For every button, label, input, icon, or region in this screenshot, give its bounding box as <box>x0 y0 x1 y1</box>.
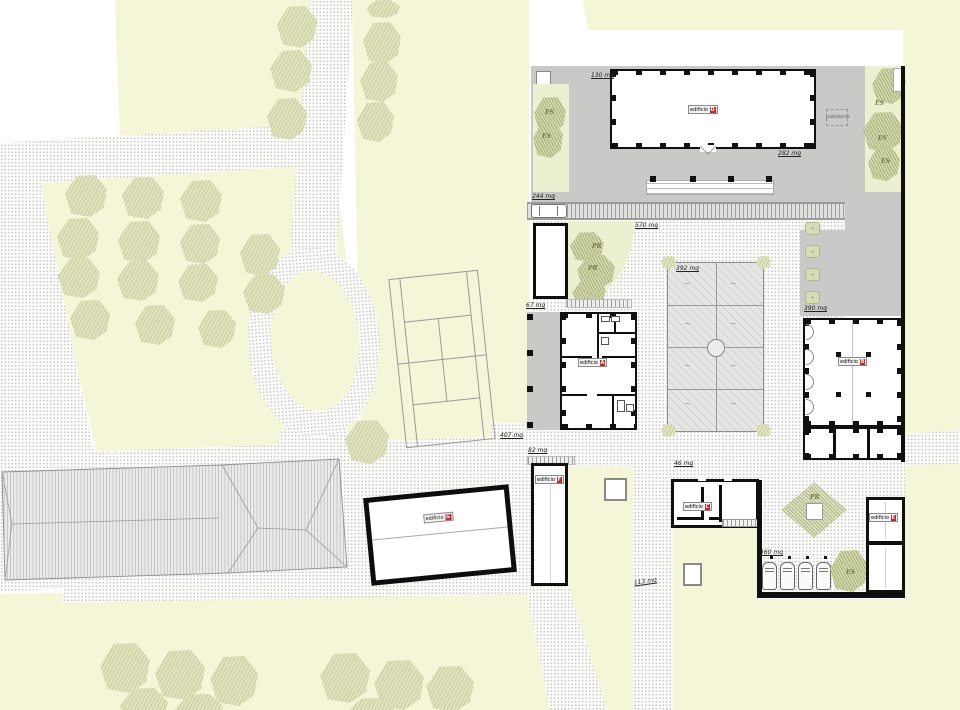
building-label-letter: C <box>705 504 711 510</box>
planter <box>805 222 820 235</box>
building-d-columns <box>624 92 804 95</box>
building-label-g: edificioG <box>423 512 453 524</box>
door-gap <box>698 477 706 481</box>
wall <box>677 517 704 520</box>
area-label-46: 46 mq <box>674 461 693 467</box>
pier <box>650 176 656 182</box>
building-label-text: edificio <box>425 514 443 522</box>
pier <box>527 422 533 428</box>
building-label-text: edificio <box>690 107 708 113</box>
pier <box>527 314 533 320</box>
parking-tick <box>824 556 827 559</box>
annex-divider <box>867 429 870 458</box>
building-label-a: edificioA <box>578 358 607 367</box>
planter <box>805 291 820 304</box>
area-label-390: 390 mq <box>804 306 827 312</box>
wall <box>709 517 721 520</box>
es-marker: ES <box>545 110 554 116</box>
fixture <box>611 316 620 322</box>
tennis-court <box>388 270 495 448</box>
planter <box>805 268 820 281</box>
walk-edge-hatch <box>566 299 632 308</box>
pergola-line <box>668 389 763 390</box>
wall <box>597 314 599 358</box>
building-label-e: edificioE <box>869 513 898 522</box>
pier <box>527 386 533 392</box>
area-label-570: 570 mq <box>635 223 658 229</box>
pr-marker: PR <box>810 495 820 501</box>
area-label-82: 82 mq <box>528 448 547 454</box>
es-marker: ES <box>875 101 884 107</box>
entrance-door-icon <box>698 146 718 156</box>
area-label-407: 407 mq <box>500 433 523 439</box>
bench-symbol: ~ <box>684 320 691 328</box>
building-label-b: edificioB <box>838 357 867 366</box>
arcade-west <box>527 312 562 430</box>
planter <box>805 245 820 258</box>
wall <box>612 396 614 428</box>
building-e <box>866 497 905 593</box>
building-label-letter: B <box>860 359 866 365</box>
fixture <box>617 400 625 412</box>
pr-marker: PR <box>588 266 598 272</box>
area-label-392: 392 mq <box>676 266 699 272</box>
garden-square <box>683 563 702 586</box>
building-f-centerline <box>550 478 551 583</box>
garden-square <box>604 478 627 501</box>
wall <box>599 332 635 334</box>
annex-divider <box>833 429 836 458</box>
door-gap <box>724 477 732 481</box>
parking-tick <box>770 556 773 559</box>
building-b <box>803 318 903 427</box>
bench-symbol: ~ <box>730 362 737 370</box>
building-e-divider <box>869 541 902 545</box>
building-label-text: edificio <box>580 360 598 366</box>
building-label-c: edificioC <box>683 502 712 511</box>
car <box>780 562 795 590</box>
building-g: edificioG <box>363 484 517 586</box>
building-d-columns <box>624 124 804 127</box>
fixture <box>626 404 634 412</box>
steps-hatch <box>722 519 761 527</box>
building-label-letter: D <box>710 107 716 113</box>
es-marker: ES <box>846 570 855 576</box>
building-label-text: edificio <box>871 515 889 521</box>
building-label-letter: A <box>600 360 606 366</box>
building-nw-annex <box>533 223 568 299</box>
building-label-d: edificioD <box>688 105 718 114</box>
car <box>798 562 813 590</box>
road-strip <box>527 202 845 220</box>
building-label-letter: G <box>445 514 452 521</box>
building-label-text: edificio <box>537 477 555 483</box>
bench-symbol: ~ <box>684 362 691 370</box>
fixture <box>601 316 610 322</box>
area-label-67: 67 mq <box>526 303 545 309</box>
pergola-line <box>668 305 763 306</box>
wall <box>562 394 587 396</box>
platform-label: piattaforma <box>826 115 850 119</box>
building-b-annex <box>803 427 903 460</box>
bench-symbol: ~ <box>730 400 737 408</box>
pier <box>728 176 734 182</box>
area-label-244: 244 mq <box>532 194 555 200</box>
wall <box>597 394 635 396</box>
building-label-letter: E <box>891 515 896 521</box>
bench-symbol: ~ <box>730 320 737 328</box>
pergola-hub <box>707 339 725 357</box>
pr-marker: PR <box>592 244 602 250</box>
pier <box>527 350 533 356</box>
bench-symbol: ~ <box>730 280 737 288</box>
pier <box>690 176 696 182</box>
es-marker: ES <box>881 159 890 165</box>
car <box>816 562 831 590</box>
bench-symbol: ~ <box>684 400 691 408</box>
building-label-text: edificio <box>685 504 703 510</box>
parking-tick <box>788 556 791 559</box>
area-label-282: 282 mq <box>778 151 801 157</box>
site-plan: ES ES edificioD 130 mq 282 mq piattaform… <box>0 0 960 710</box>
building-b-centerline <box>852 320 853 425</box>
parking-tick <box>806 556 809 559</box>
car <box>762 562 777 590</box>
fixture <box>601 337 609 345</box>
column <box>866 392 871 397</box>
bench-symbol: ~ <box>684 280 691 288</box>
building-label-f: edificioF <box>535 475 564 484</box>
pier <box>766 176 772 182</box>
planter-box <box>806 503 823 520</box>
building-g-divider <box>372 527 507 541</box>
area-label-130: 130 mq <box>591 73 614 79</box>
building-label-letter: F <box>557 477 562 483</box>
building-label-text: edificio <box>840 359 858 365</box>
es-marker: ES <box>542 134 551 140</box>
car <box>531 204 567 218</box>
terrace-steps <box>646 180 774 195</box>
column <box>836 392 841 397</box>
roof-building <box>0 452 352 588</box>
building-e-centerline <box>885 548 886 588</box>
es-marker: ES <box>878 136 887 142</box>
